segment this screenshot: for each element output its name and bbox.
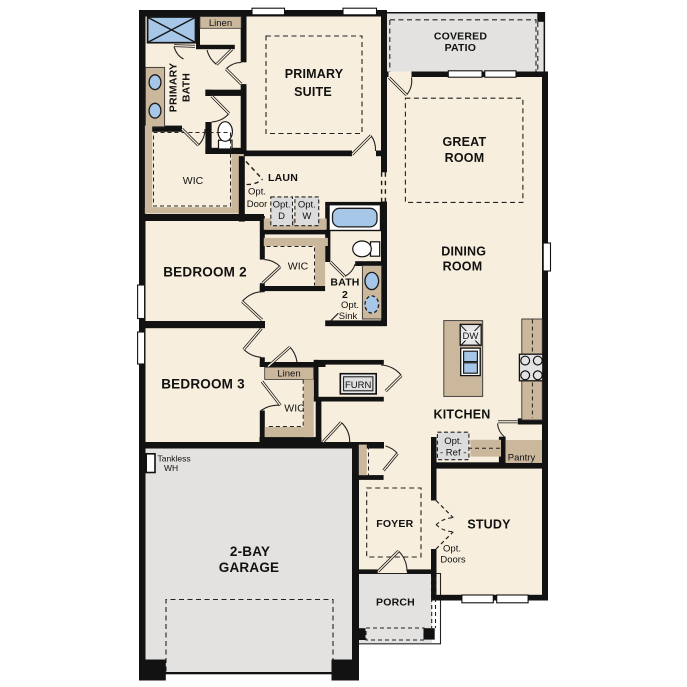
svg-text:Opt.: Opt. xyxy=(443,544,461,555)
svg-text:FURN: FURN xyxy=(345,380,372,391)
svg-text:Doors: Doors xyxy=(440,555,466,566)
svg-text:SUITE: SUITE xyxy=(294,85,332,99)
svg-text:Linen: Linen xyxy=(277,369,300,380)
svg-text:Tankless: Tankless xyxy=(158,454,191,464)
svg-text:Pantry: Pantry xyxy=(508,453,536,464)
svg-text:GREAT: GREAT xyxy=(442,135,486,149)
svg-text:ROOM: ROOM xyxy=(443,260,483,274)
svg-text:W: W xyxy=(302,211,311,222)
svg-text:2-BAY: 2-BAY xyxy=(230,544,270,559)
svg-text:LAUN: LAUN xyxy=(268,172,298,184)
svg-text:WIC: WIC xyxy=(284,403,305,415)
svg-text:KITCHEN: KITCHEN xyxy=(434,408,491,422)
svg-text:WIC: WIC xyxy=(288,261,309,273)
svg-text:Opt.: Opt. xyxy=(298,200,316,211)
svg-text:DW: DW xyxy=(462,331,478,342)
svg-text:- Ref -: - Ref - xyxy=(440,448,466,459)
svg-text:FOYER: FOYER xyxy=(376,518,413,530)
svg-text:DINING: DINING xyxy=(441,245,486,259)
svg-text:BEDROOM 2: BEDROOM 2 xyxy=(163,265,247,280)
svg-text:PORCH: PORCH xyxy=(376,597,415,609)
svg-text:BATH: BATH xyxy=(181,73,193,102)
svg-text:PRIMARY: PRIMARY xyxy=(285,67,344,81)
svg-text:WIC: WIC xyxy=(183,175,204,187)
svg-text:ROOM: ROOM xyxy=(445,151,485,165)
svg-text:Linen: Linen xyxy=(209,18,232,29)
svg-text:WH: WH xyxy=(164,463,178,473)
svg-text:Door: Door xyxy=(247,199,268,210)
svg-text:PATIO: PATIO xyxy=(445,42,477,54)
svg-text:Opt.: Opt. xyxy=(248,187,266,198)
svg-text:BEDROOM 3: BEDROOM 3 xyxy=(161,377,245,392)
svg-text:BATH: BATH xyxy=(330,277,359,289)
svg-text:Sink: Sink xyxy=(339,311,358,322)
svg-text:Opt.: Opt. xyxy=(444,436,462,447)
svg-text:COVERED: COVERED xyxy=(434,31,488,43)
svg-text:GARAGE: GARAGE xyxy=(219,560,279,575)
svg-text:D: D xyxy=(278,211,285,222)
svg-text:PRIMARY: PRIMARY xyxy=(168,63,180,112)
svg-text:Opt.: Opt. xyxy=(273,200,291,211)
svg-text:STUDY: STUDY xyxy=(467,518,511,532)
svg-text:Opt.: Opt. xyxy=(341,300,359,311)
